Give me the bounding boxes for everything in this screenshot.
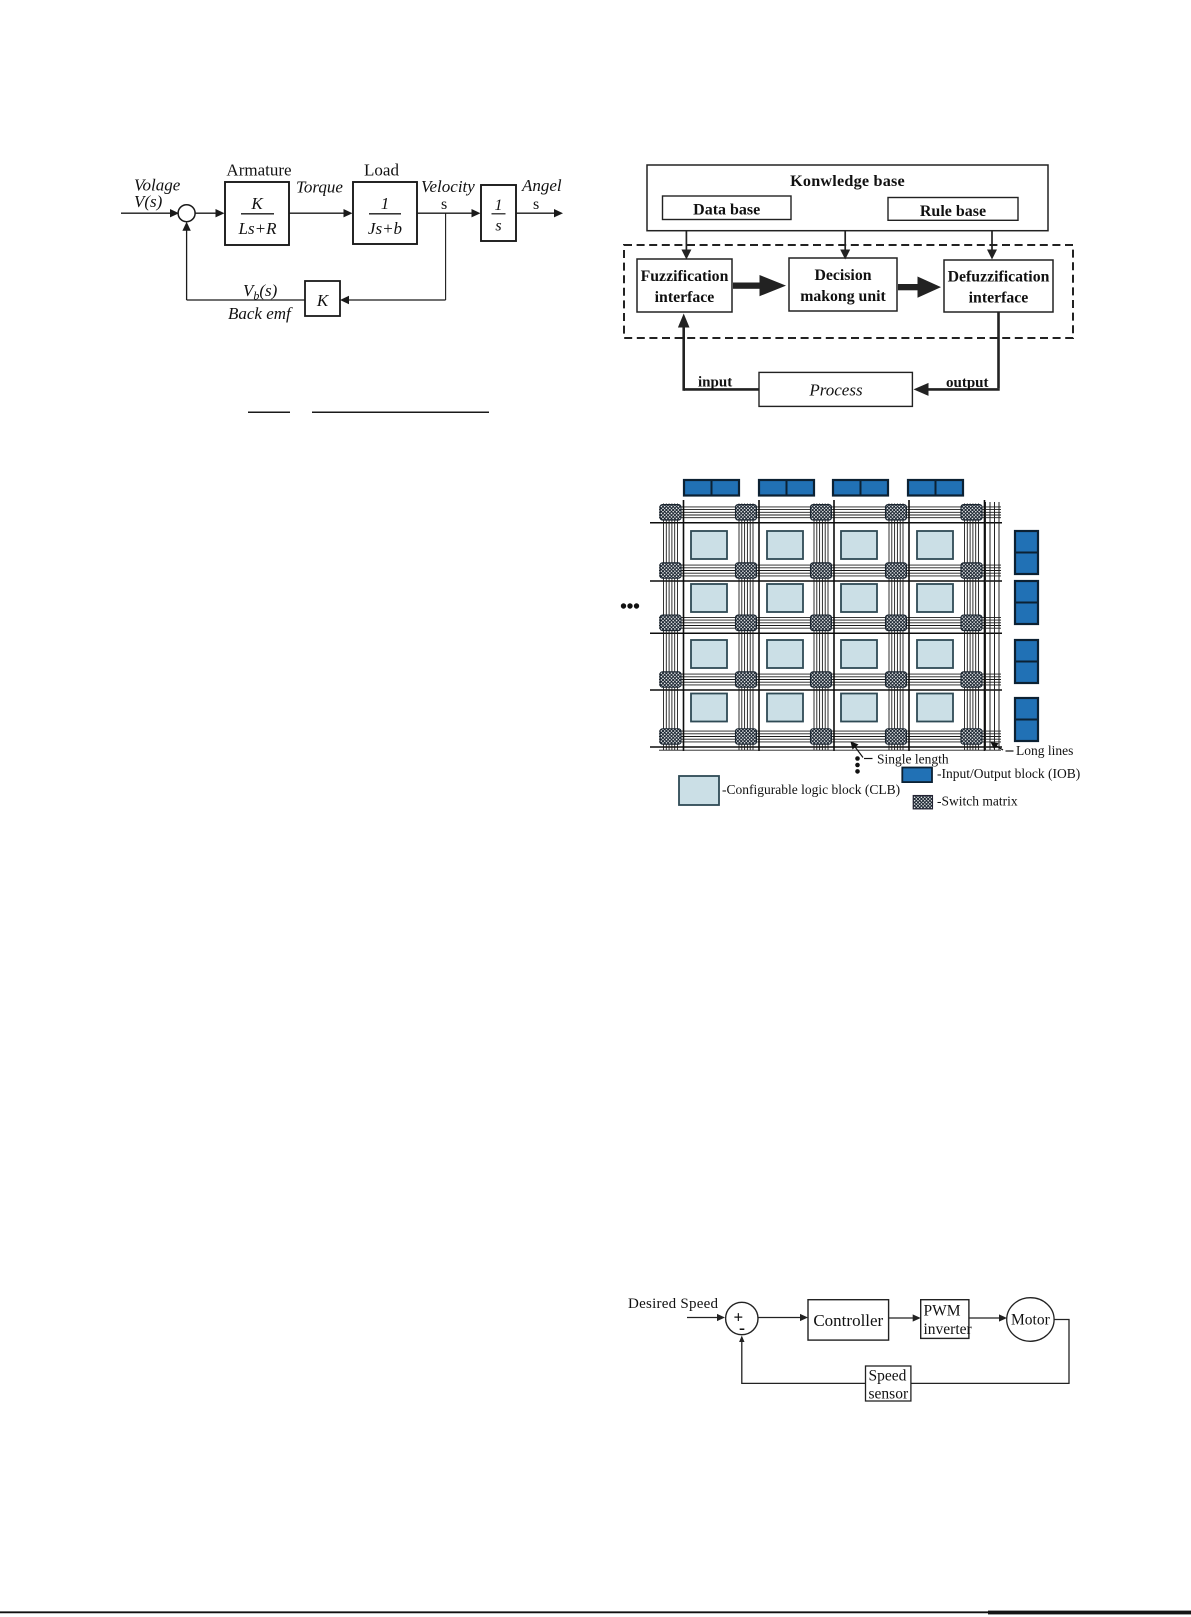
svg-text:Long lines: Long lines	[1016, 743, 1073, 758]
svg-text:Speed: Speed	[869, 1368, 907, 1385]
svg-text:Data base: Data base	[693, 202, 760, 219]
svg-text:1: 1	[495, 197, 503, 214]
svg-text:s: s	[441, 196, 447, 213]
svg-text:Js+b: Js+b	[368, 219, 402, 238]
svg-text:Single length: Single length	[877, 751, 949, 766]
svg-text:K: K	[316, 291, 330, 310]
svg-text:Armature: Armature	[226, 161, 291, 180]
svg-text:-: -	[739, 1318, 745, 1338]
svg-text:Torque: Torque	[296, 178, 343, 197]
svg-text:V(s): V(s)	[134, 192, 163, 211]
svg-text:Load: Load	[364, 161, 399, 180]
svg-text:-Input/Output block (IOB): -Input/Output block (IOB)	[937, 766, 1080, 781]
svg-text:Konwledge base: Konwledge base	[790, 172, 905, 190]
svg-text:input: input	[698, 375, 732, 391]
svg-text:Process: Process	[808, 381, 863, 400]
svg-text:Fuzzification: Fuzzification	[641, 268, 729, 285]
svg-text:PWM: PWM	[924, 1303, 961, 1320]
svg-text:Defuzzification: Defuzzification	[948, 269, 1050, 286]
svg-text:s: s	[495, 218, 501, 235]
svg-text:s: s	[533, 196, 539, 213]
svg-text:output: output	[946, 375, 989, 391]
svg-text:inverter: inverter	[924, 1321, 973, 1338]
svg-text:K: K	[250, 194, 264, 213]
svg-text:Back emf: Back emf	[228, 304, 293, 323]
svg-text:Angel: Angel	[521, 176, 562, 195]
svg-text:interface: interface	[655, 289, 715, 306]
svg-text:interface: interface	[969, 290, 1029, 307]
svg-text:Ls+R: Ls+R	[238, 219, 278, 238]
svg-text:Decision: Decision	[814, 267, 871, 284]
svg-text:sensor: sensor	[869, 1386, 909, 1403]
svg-text:Motor: Motor	[1011, 1312, 1051, 1329]
svg-text:-Configurable logic block (CLB: -Configurable logic block (CLB)	[722, 782, 900, 797]
svg-text:Velocity: Velocity	[421, 177, 475, 196]
svg-text:Rule base: Rule base	[920, 203, 986, 220]
svg-text:Vb(s): Vb(s)	[243, 281, 278, 303]
svg-text:Controller: Controller	[813, 1311, 883, 1330]
svg-text:makong unit: makong unit	[800, 288, 886, 305]
svg-text:-Switch matrix: -Switch matrix	[937, 794, 1018, 809]
svg-text:Desired Speed: Desired Speed	[628, 1296, 719, 1312]
svg-text:1: 1	[381, 194, 390, 213]
